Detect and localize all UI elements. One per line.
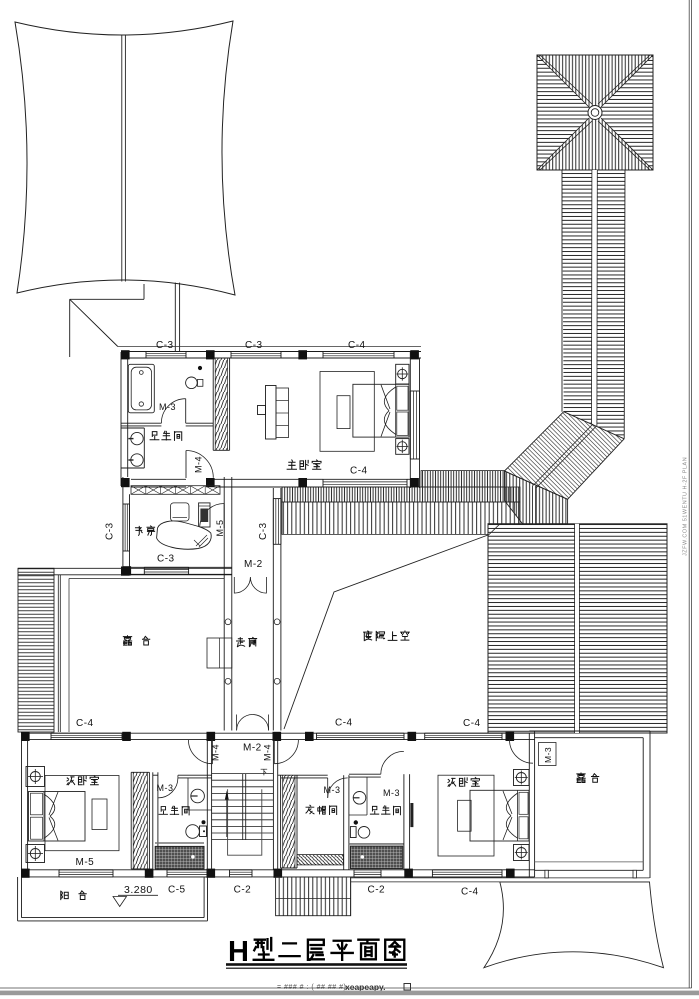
svg-text:M-3: M-3 [383, 788, 400, 798]
svg-text:C-3: C-3 [105, 522, 116, 540]
svg-text:C-3: C-3 [258, 522, 269, 540]
svg-text:M-2: M-2 [243, 743, 262, 754]
svg-text:M-3: M-3 [159, 402, 176, 412]
svg-text:C-2: C-2 [234, 885, 252, 896]
svg-text:M-5: M-5 [215, 520, 225, 537]
svg-text:= ### # : ( ## ## #): = ### # : ( ## ## #) [277, 984, 346, 991]
svg-text:xeapeapy.: xeapeapy. [345, 982, 385, 992]
svg-text:M-3: M-3 [324, 785, 341, 795]
svg-text:C-5: C-5 [168, 885, 186, 896]
svg-text:C-3: C-3 [157, 554, 175, 565]
svg-text:M-4: M-4 [263, 744, 273, 761]
svg-text:JZFW.COM 51WENTU H-2F PLAN: JZFW.COM 51WENTU H-2F PLAN [683, 457, 689, 556]
svg-text:C-4: C-4 [463, 718, 481, 729]
svg-text:C-3: C-3 [156, 340, 174, 351]
svg-text:M-2: M-2 [244, 559, 263, 570]
svg-text:M-3: M-3 [157, 783, 174, 793]
svg-text:C-4: C-4 [335, 718, 353, 729]
svg-text:C-4: C-4 [461, 887, 479, 898]
svg-text:M-3: M-3 [543, 747, 553, 763]
svg-text:C-4: C-4 [76, 718, 94, 729]
svg-text:3.280: 3.280 [124, 884, 153, 896]
svg-text:M-4: M-4 [194, 456, 204, 473]
svg-text:C-3: C-3 [245, 340, 263, 351]
svg-text:C-4: C-4 [350, 466, 368, 477]
svg-text:C-4: C-4 [348, 340, 366, 351]
svg-text:M-5: M-5 [76, 857, 95, 868]
svg-text:C-2: C-2 [368, 885, 386, 896]
